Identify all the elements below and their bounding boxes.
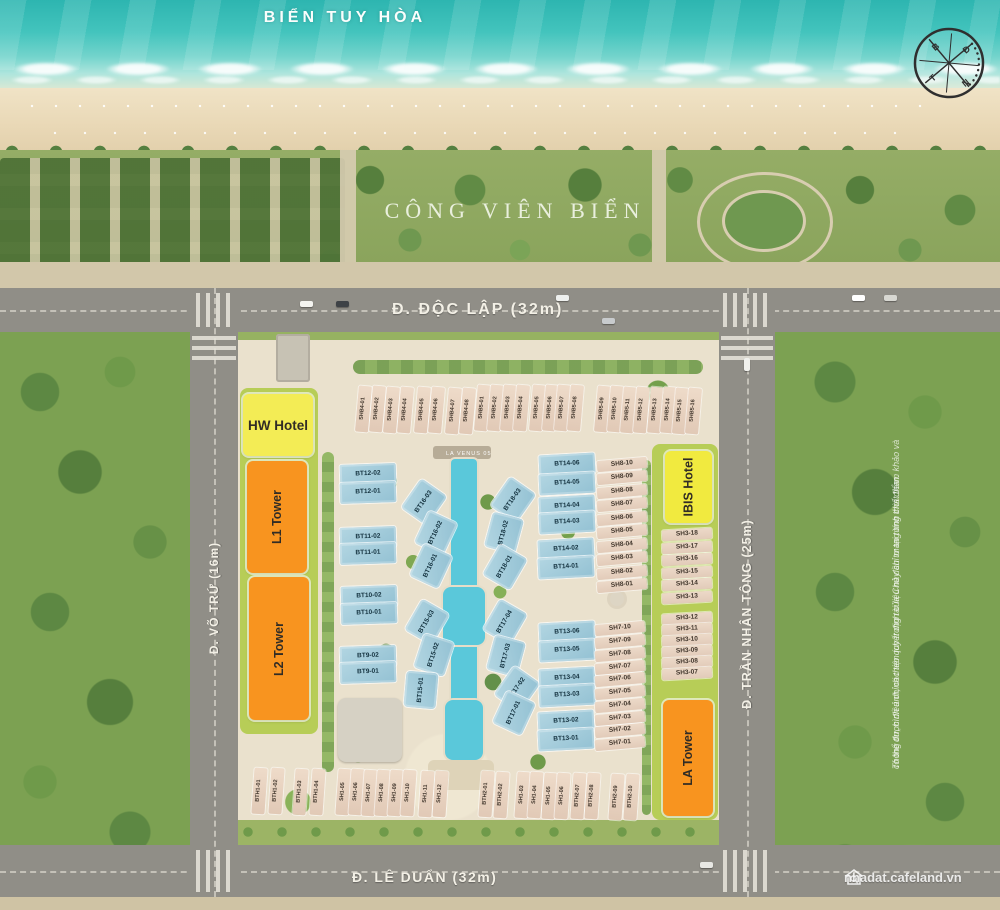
car xyxy=(336,301,349,307)
crosswalk xyxy=(196,850,232,892)
car xyxy=(602,318,615,324)
site-hedge-north xyxy=(238,332,719,340)
pool-label: LA VENUS 05 xyxy=(446,451,492,457)
road-label-doc-lap: Đ. ĐỘC LẬP (32m) xyxy=(392,301,563,319)
beach-umbrella-row xyxy=(20,100,940,112)
sidewalk-south xyxy=(0,897,1000,910)
park-label: CÔNG VIÊN BIỂN xyxy=(350,198,680,224)
compass-icon: B Đ N T xyxy=(908,22,990,104)
sidewalk xyxy=(0,262,1000,288)
car xyxy=(852,295,865,301)
road-label-vo-tru: Đ. VÕ TRỨ (16m) xyxy=(207,542,221,654)
master-plan-map: BIỂN TUY HÒA CÔNG VIÊN BIỂN Đ. xyxy=(0,0,1000,910)
fountain xyxy=(610,592,624,606)
car xyxy=(300,301,313,307)
car xyxy=(700,862,713,868)
site-tree-row xyxy=(642,460,651,815)
utility-building xyxy=(276,334,310,382)
car xyxy=(884,295,897,301)
crosswalk xyxy=(723,293,771,327)
park-hedge-garden xyxy=(0,158,345,276)
tower-lawn-west xyxy=(240,388,318,734)
disclaimer-line: có thể được điều chỉnh theo quyết định c… xyxy=(891,475,902,769)
pool-lagoon xyxy=(445,700,483,760)
tower-lawn-east xyxy=(652,444,718,820)
green-area-east xyxy=(775,332,1000,910)
pool-lagoon xyxy=(443,587,485,645)
site-hedge-south xyxy=(238,820,719,845)
project-site xyxy=(238,332,719,845)
clubhouse xyxy=(338,698,402,762)
watermark-text: nhadat.cafeland.vn xyxy=(844,870,962,885)
crosswalk xyxy=(196,293,232,327)
crosswalk xyxy=(192,336,236,360)
site-tree-row xyxy=(353,360,703,374)
green-area-west xyxy=(0,332,190,910)
surf-foam-2 xyxy=(0,74,1000,88)
sea-label: BIỂN TUY HÒA xyxy=(195,9,495,27)
watermark: nhadat.cafeland.vn xyxy=(844,868,864,886)
car xyxy=(744,358,750,371)
crosswalk xyxy=(721,336,773,360)
pool-deck xyxy=(428,760,494,790)
crosswalk xyxy=(723,850,771,892)
site-tree-row xyxy=(322,452,334,772)
road-label-le-duan: Đ. LÊ DUẨN (32m) xyxy=(352,869,497,885)
disclaimer-text: Thông tin, hình ảnh, các tiện ích trong … xyxy=(891,397,921,769)
plaza-inner-ring xyxy=(722,190,806,252)
park-circular-plaza xyxy=(697,172,833,272)
road-label-tran-nhan-tong: Đ. TRẦN NHÂN TÔNG (25m) xyxy=(740,519,754,709)
